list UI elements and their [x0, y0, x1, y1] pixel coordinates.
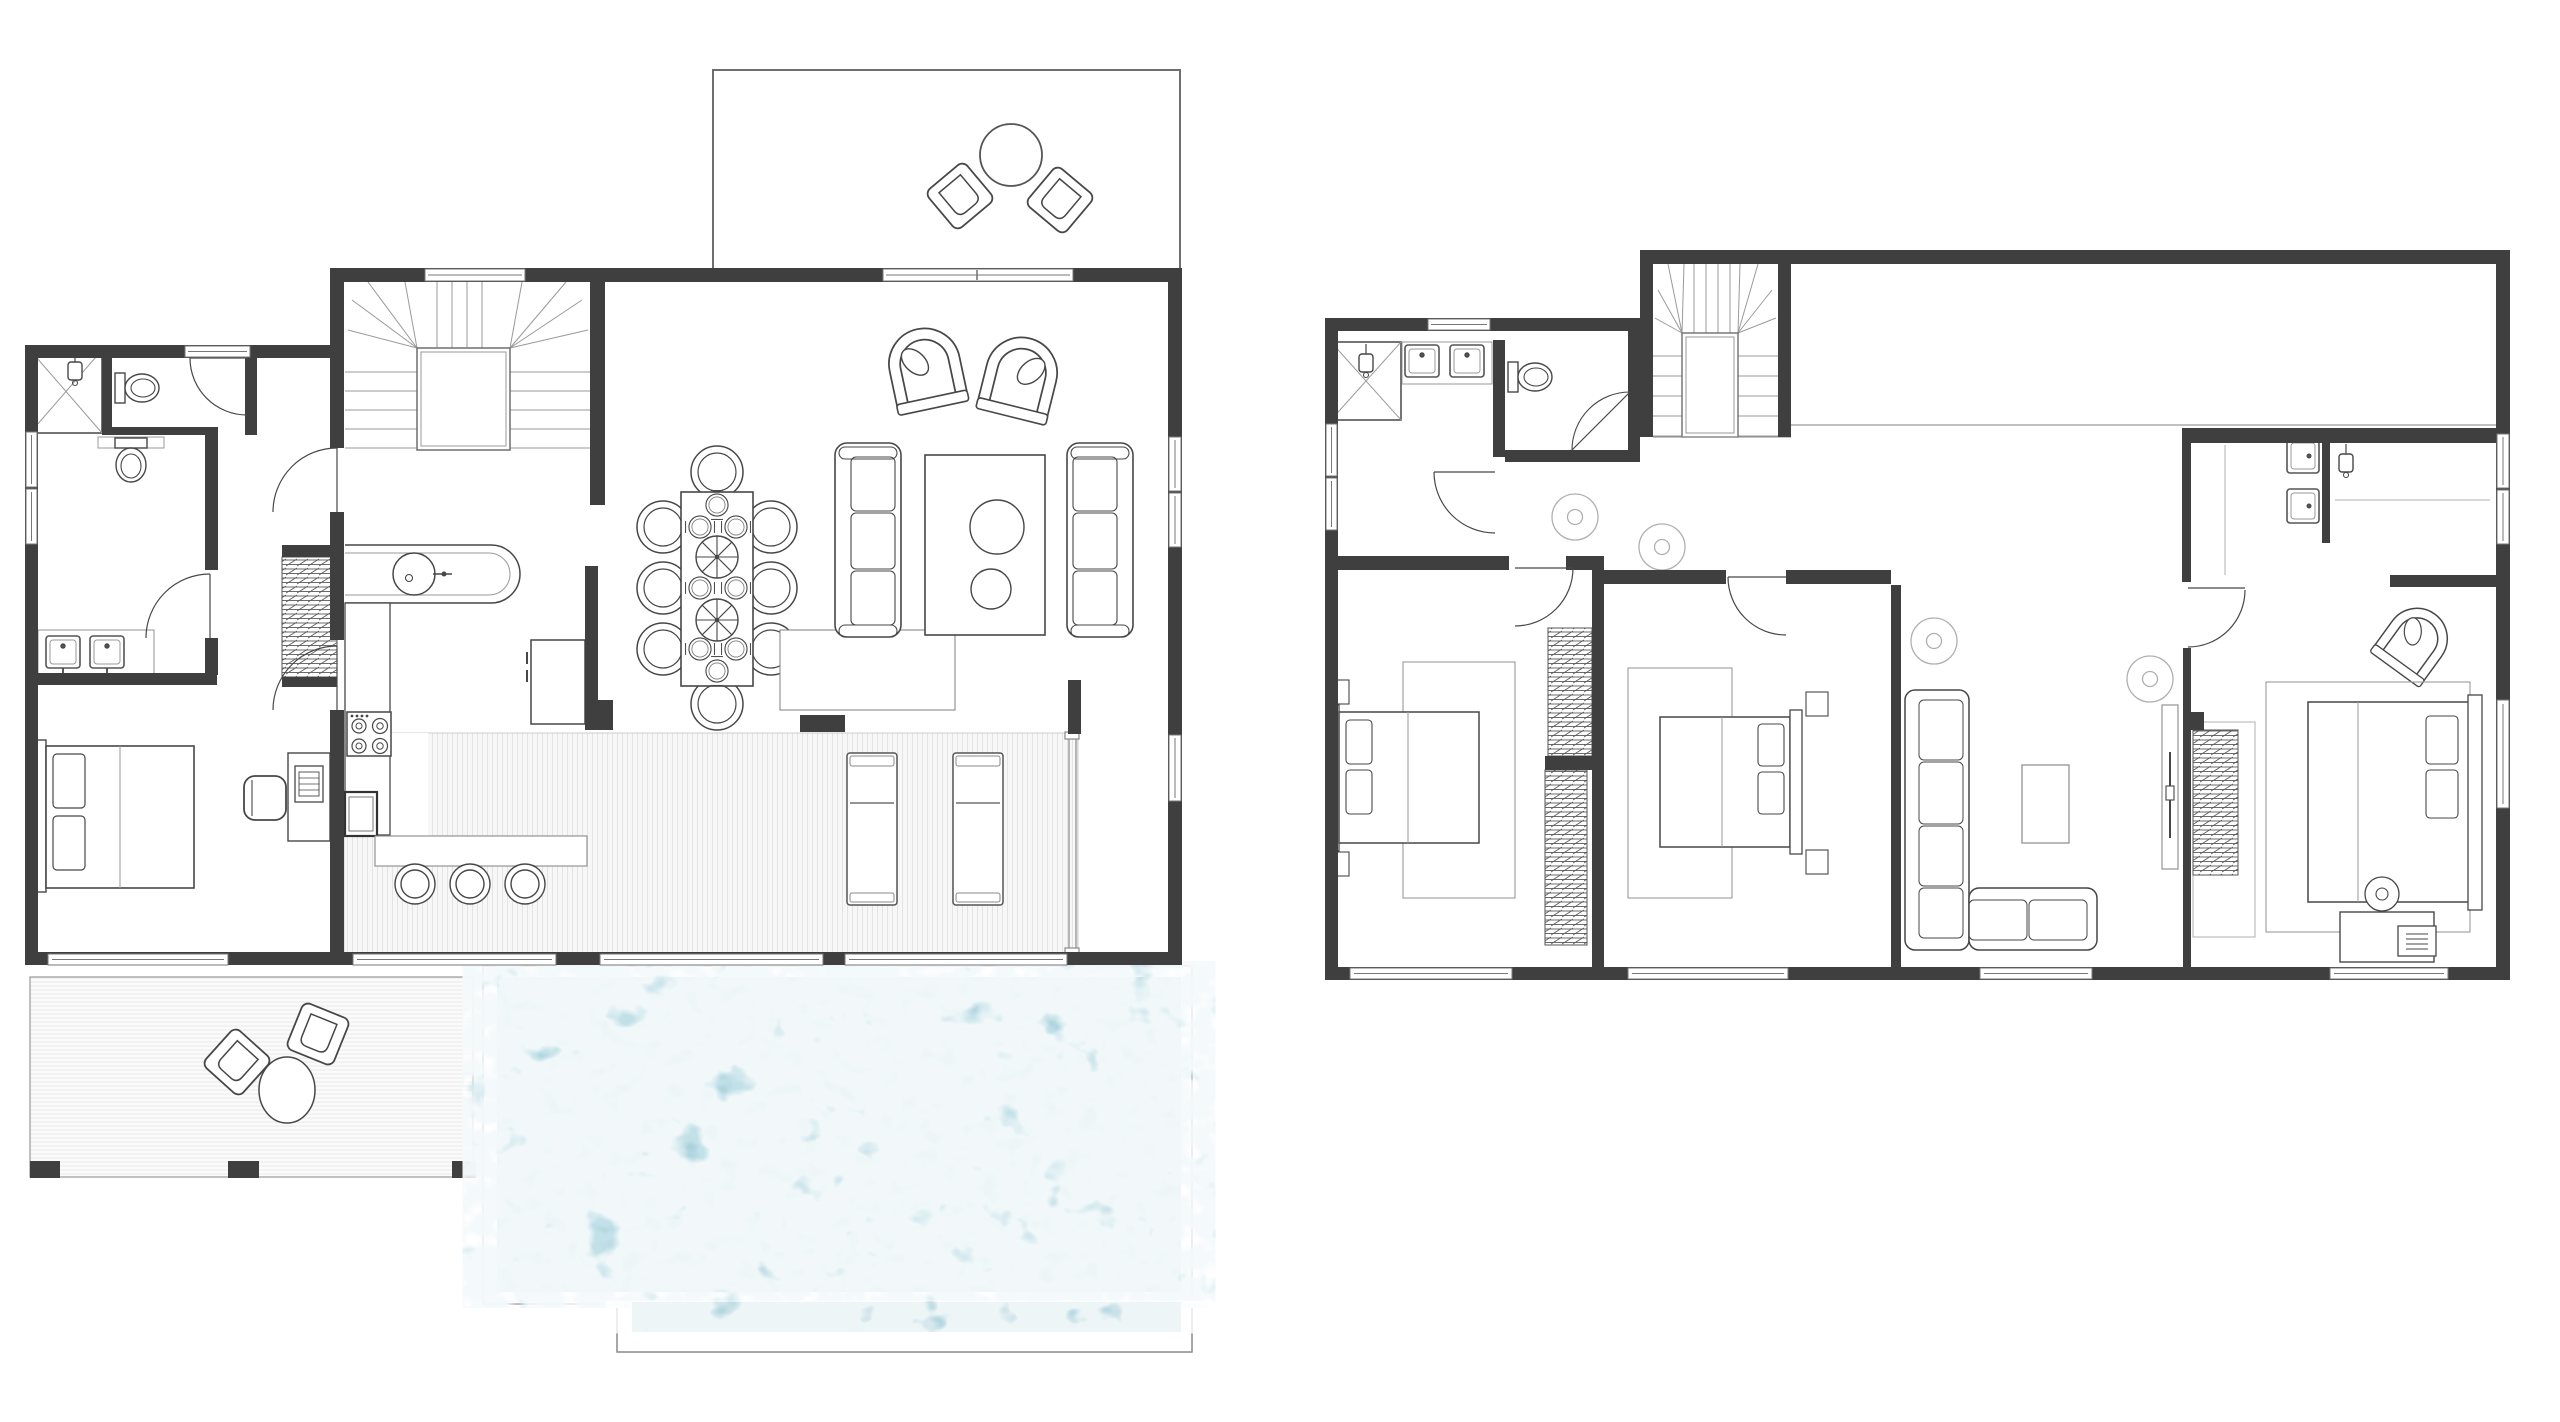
pillow	[53, 816, 85, 870]
window	[2497, 700, 2509, 808]
window	[1628, 968, 1788, 979]
sink	[1450, 345, 1484, 377]
tv-console	[2162, 705, 2178, 869]
pillow	[1346, 720, 1372, 764]
window	[48, 954, 228, 965]
arch-lounge-chair	[883, 327, 969, 415]
shower	[30, 350, 102, 433]
master-shower-head	[2339, 444, 2353, 478]
window	[1169, 493, 1181, 547]
pillow	[53, 754, 85, 808]
bed-headboard	[2468, 695, 2482, 910]
radio-device	[2398, 926, 2436, 956]
table-lamp	[2365, 877, 2399, 911]
ceiling-fan	[1911, 618, 1957, 664]
living-area	[780, 327, 1133, 710]
staircase	[345, 282, 590, 450]
breakfast-bar	[375, 836, 587, 866]
stair-landing	[1682, 333, 1738, 437]
sink	[2287, 489, 2319, 523]
dining-set	[637, 446, 797, 730]
sofa	[1067, 443, 1133, 637]
window	[845, 954, 1067, 965]
fridge	[527, 640, 585, 724]
lounge	[1905, 618, 2178, 950]
pool-water	[497, 977, 1181, 1332]
sink	[2287, 439, 2319, 473]
wc-toilet	[115, 373, 159, 403]
outdoor-table	[980, 124, 1042, 186]
window	[2497, 434, 2509, 488]
ceiling-fan	[1552, 494, 1598, 540]
window	[883, 269, 1073, 281]
sun-lounger	[953, 753, 1003, 905]
arch-lounge-chair	[976, 335, 1064, 425]
sideboard	[780, 630, 955, 710]
master-bedroom	[2193, 600, 2482, 962]
sink	[1405, 345, 1439, 377]
armchair	[2370, 600, 2457, 688]
swimming-pool	[483, 966, 1192, 1352]
floor-plan-drawing	[0, 0, 2560, 1422]
window	[1169, 735, 1181, 801]
bath-toilet	[98, 437, 164, 482]
coffee-table	[2022, 765, 2069, 843]
oven	[345, 792, 377, 836]
pillow	[2426, 716, 2458, 764]
kitchen	[345, 545, 587, 904]
ceiling-fan	[1639, 524, 1685, 570]
wardrobe	[2193, 722, 2255, 937]
wardrobe	[1545, 628, 1592, 945]
sun-lounger	[847, 753, 897, 905]
cooktop	[347, 712, 391, 756]
bedroom-2	[1327, 662, 1515, 898]
pillow	[1758, 724, 1784, 766]
window	[1326, 478, 1337, 530]
window	[600, 954, 823, 965]
stair-winders	[348, 282, 588, 348]
window	[1326, 424, 1337, 476]
bar-stools	[395, 864, 545, 904]
coffee-table	[925, 455, 1045, 635]
desk-chair	[244, 776, 286, 820]
window	[425, 269, 525, 281]
ceiling-fan	[2127, 656, 2173, 702]
window	[185, 346, 250, 357]
doors	[1434, 392, 2245, 647]
nightstand	[1806, 850, 1828, 874]
bathroom-suite	[30, 350, 164, 676]
bed-headboard	[1790, 710, 1802, 854]
window	[353, 954, 556, 965]
outdoor-table	[259, 1057, 315, 1123]
window	[1980, 968, 2092, 979]
window	[26, 432, 37, 487]
ground-floor-plan	[25, 70, 1192, 1352]
window	[1169, 437, 1181, 491]
wc-toilet	[1508, 362, 1552, 392]
shower	[1331, 342, 1401, 420]
window	[1350, 968, 1512, 979]
pillow	[1346, 770, 1372, 814]
sofa	[835, 443, 901, 637]
window	[26, 489, 37, 544]
window	[1428, 319, 1490, 330]
pillow	[2426, 770, 2458, 818]
lazy-susan	[696, 536, 738, 578]
double-vanity	[38, 630, 154, 676]
lazy-susan	[696, 599, 738, 641]
stair-landing	[417, 348, 510, 450]
nightstand	[1806, 692, 1828, 716]
laptop	[295, 766, 323, 802]
entry-terrace	[713, 70, 1180, 270]
window	[2497, 490, 2509, 544]
window	[2330, 968, 2448, 979]
bedroom-3	[1628, 668, 1828, 898]
lower-deck	[30, 977, 476, 1178]
master-bathroom	[2225, 439, 2490, 575]
staircase	[1653, 264, 1791, 437]
upper-floor-plan	[1325, 250, 2510, 980]
bedroom	[30, 740, 330, 892]
pillow	[1758, 772, 1784, 814]
bathroom	[1331, 342, 1552, 420]
